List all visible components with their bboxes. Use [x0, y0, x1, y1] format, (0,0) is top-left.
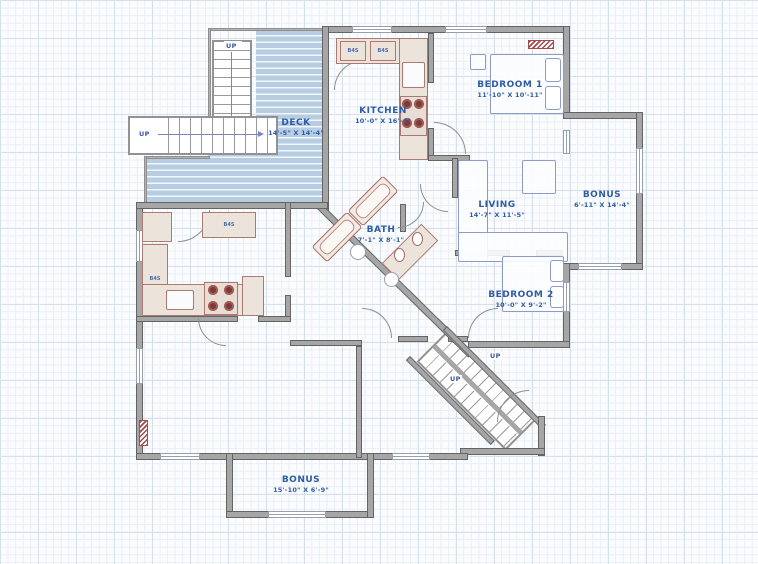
nightstand [470, 54, 486, 70]
window [563, 130, 570, 154]
side-table [522, 160, 556, 194]
staircase-left [128, 116, 278, 155]
kitchen-cabinet: B4S [370, 41, 396, 61]
toilet [350, 244, 366, 260]
stove-burner-icon [208, 301, 218, 311]
window [578, 263, 622, 270]
heater-icon [528, 40, 554, 49]
room-label-bonus-bottom: BONUS 15'-10" X 6'-9" [273, 475, 329, 494]
stove-burner-icon [414, 99, 424, 109]
pillow [545, 58, 561, 82]
room-label-bath: BATH 7'-1" X 8'-1" [358, 225, 404, 244]
kitchen-sink [402, 62, 425, 88]
wall-bonusb-left [226, 453, 233, 518]
stair-arrow-line-left [158, 134, 258, 135]
window [352, 26, 392, 33]
wall-bottomright-horz [460, 448, 545, 455]
lk-sink [166, 290, 194, 310]
wall-lk-divider-a [285, 202, 291, 277]
window [636, 148, 643, 194]
door-arc-lower-room [198, 318, 226, 346]
floor-plan-canvas: UP UP UP UP [0, 0, 758, 564]
window [160, 453, 200, 460]
window [136, 348, 143, 384]
room-label-bonus-right: BONUS 6'-11" X 14'-4" [574, 190, 630, 209]
window [445, 26, 487, 33]
wall-lower-top [136, 202, 328, 209]
stove-burner-icon [224, 301, 234, 311]
door-arc-bedroom1 [434, 122, 466, 154]
deck-planks-lower [145, 158, 325, 206]
stair-up-label-top: UP [226, 42, 237, 50]
stair-up-label-diag-1: UP [449, 375, 462, 383]
kitchen-cabinet: B4S [340, 41, 366, 61]
wall-kitchen-bed1-a [428, 33, 434, 83]
lk-tall-cabinet [242, 276, 264, 316]
bathtub [348, 176, 399, 227]
window [563, 282, 570, 312]
deck-rail-step [144, 156, 210, 159]
room-label-living: LIVING 14'-7" X 11'-5" [469, 200, 525, 219]
room-label-kitchen: KITCHEN 10'-0" X 16'-4" [355, 106, 411, 125]
stair-up-label-diag-2: UP [489, 352, 502, 360]
stair-arrow-right-icon [258, 131, 264, 137]
window [268, 511, 326, 518]
stove-burner-icon [208, 285, 218, 295]
door-arc-hall [362, 308, 392, 338]
stair-arrow-line-top [231, 52, 232, 122]
wall-lk-bottom-b [258, 316, 291, 322]
wall-bed1-right [563, 26, 570, 119]
deck-rail-left-lower [144, 156, 147, 206]
wall-bonus-top [563, 112, 643, 119]
stove-burner-icon [414, 118, 424, 128]
stove-burner-icon [224, 285, 234, 295]
wall-bonusb-right [367, 453, 374, 518]
door-arc-kitchen [334, 60, 364, 90]
lk-cabinet-corner [142, 212, 172, 242]
door-arc-living [420, 184, 448, 212]
vanity-sink-icon [394, 248, 405, 262]
window [392, 453, 430, 460]
heater-icon [139, 420, 148, 446]
deck-rail-top [208, 28, 326, 31]
wall-bed2-bottom [468, 341, 570, 348]
room-label-bedroom2: BEDROOM 2 10'-0" X 9'-2" [488, 290, 554, 309]
wall-mid-horz [290, 340, 362, 346]
wall-mid-vert [356, 346, 362, 458]
vanity-sink-icon [412, 232, 423, 246]
room-label-deck: DECK 14'-5" X 14'-4" [268, 118, 324, 137]
toilet [384, 272, 399, 287]
wall-hall-horz-a [398, 336, 428, 342]
pillow [550, 260, 564, 282]
door-arc-bedroom2 [468, 308, 498, 338]
pillow [545, 86, 561, 110]
lk-cabinet-top: B4S [202, 212, 256, 238]
room-label-bedroom1: BEDROOM 1 11'-10" X 10'-11" [477, 80, 543, 99]
stair-up-label-left: UP [139, 130, 150, 138]
